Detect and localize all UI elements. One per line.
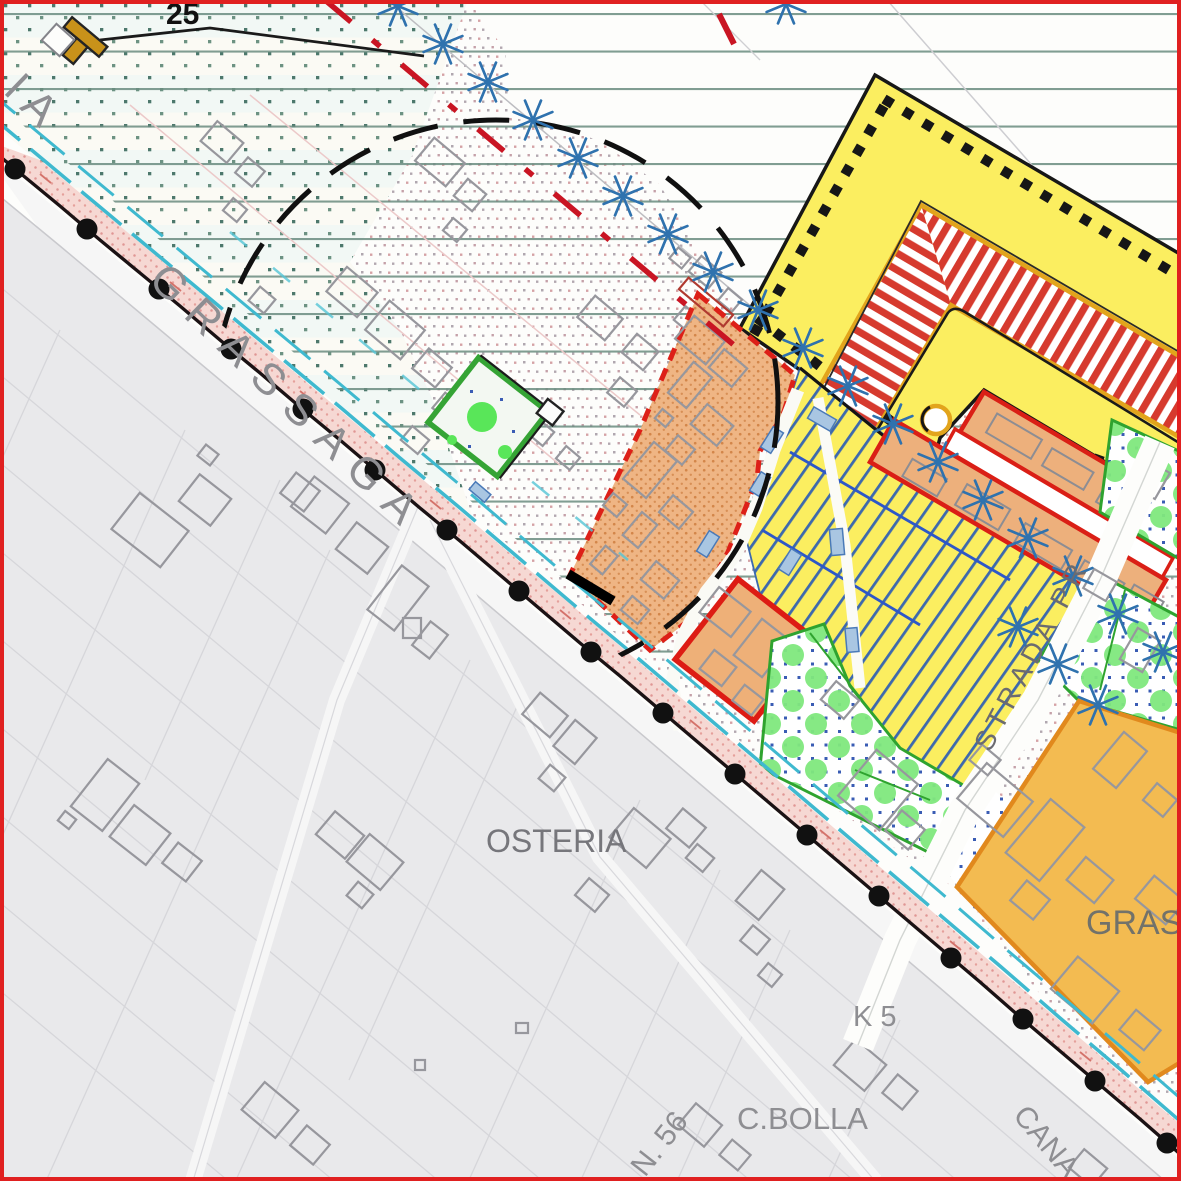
svg-text:K 5: K 5: [853, 1001, 897, 1033]
svg-text:OSTERIA: OSTERIA: [486, 823, 627, 859]
svg-text:GRAS: GRAS: [1086, 904, 1181, 942]
svg-text:C.BOLLA: C.BOLLA: [737, 1101, 868, 1136]
svg-text:25: 25: [166, 0, 199, 31]
